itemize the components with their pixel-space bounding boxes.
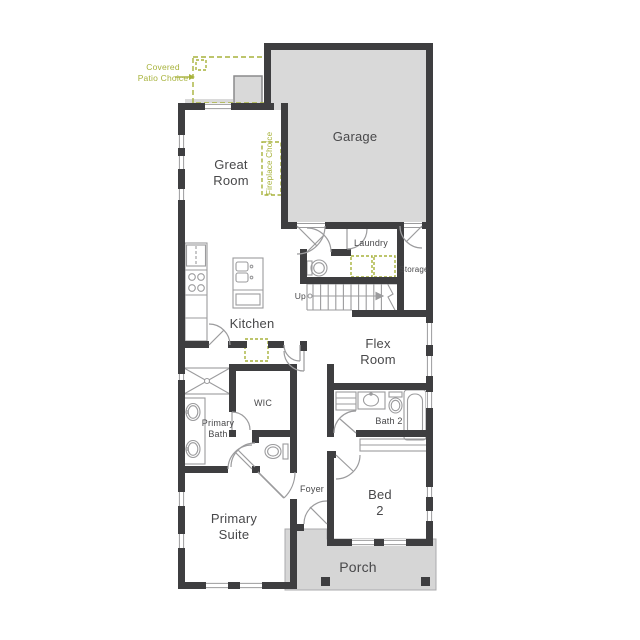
label-storage: Storage	[392, 265, 436, 275]
label-flex-room: Flex Room	[347, 336, 409, 369]
window	[178, 372, 185, 382]
chimney	[234, 76, 262, 106]
window	[178, 187, 185, 202]
window	[238, 582, 264, 589]
stair-break-line	[386, 281, 396, 312]
label-stairs-up: Up	[280, 291, 306, 302]
window	[350, 539, 376, 546]
label-garage: Garage	[315, 129, 395, 145]
porch-post	[421, 577, 430, 586]
label-great-room: Great Room	[199, 157, 263, 190]
patio-post-outline	[196, 60, 206, 70]
porch-post	[321, 577, 330, 586]
label-primary-suite: Primary Suite	[200, 511, 268, 544]
window	[178, 154, 185, 171]
washer-outline	[351, 256, 372, 277]
hall-door	[284, 345, 300, 361]
bath2-linen	[336, 392, 356, 410]
window	[426, 321, 433, 347]
bath2-toilet	[389, 392, 402, 413]
window	[178, 133, 185, 150]
floor-plan-drawing	[0, 0, 640, 640]
primary-shower	[184, 368, 230, 394]
label-foyer: Foyer	[286, 484, 338, 495]
floor-plan: Great Room Garage Kitchen Flex Room Prim…	[0, 0, 640, 640]
stairs	[307, 281, 397, 312]
label-fireplace-choice: Fireplace Choice	[265, 139, 279, 195]
front-door	[304, 501, 327, 524]
window	[426, 485, 433, 499]
label-bath-2: Bath 2	[369, 416, 409, 427]
window	[203, 103, 233, 110]
label-laundry: Laundry	[340, 238, 402, 249]
window	[426, 509, 433, 523]
label-kitchen: Kitchen	[212, 316, 292, 332]
bath2-door	[334, 411, 356, 433]
kitchen-option-outline	[245, 339, 268, 361]
label-porch: Porch	[318, 559, 398, 577]
window	[204, 582, 230, 589]
label-wic: WIC	[243, 398, 283, 409]
bed2-door	[336, 455, 360, 479]
label-primary-bath: Primary Bath	[192, 418, 244, 441]
window	[426, 354, 433, 378]
window	[426, 390, 433, 410]
up-arrow	[308, 293, 383, 300]
bed2-closet	[360, 439, 429, 451]
kitchen-island	[233, 258, 263, 308]
primary-toilet	[265, 444, 288, 459]
bath2-vanity	[358, 392, 385, 409]
window	[178, 532, 185, 550]
label-covered-patio-choice: Covered Patio Choice	[137, 62, 189, 84]
powder-toilet	[307, 260, 327, 276]
window	[382, 539, 408, 546]
kitchen-counter	[185, 243, 207, 341]
label-bed-2: Bed 2	[363, 487, 397, 520]
window	[178, 490, 185, 508]
